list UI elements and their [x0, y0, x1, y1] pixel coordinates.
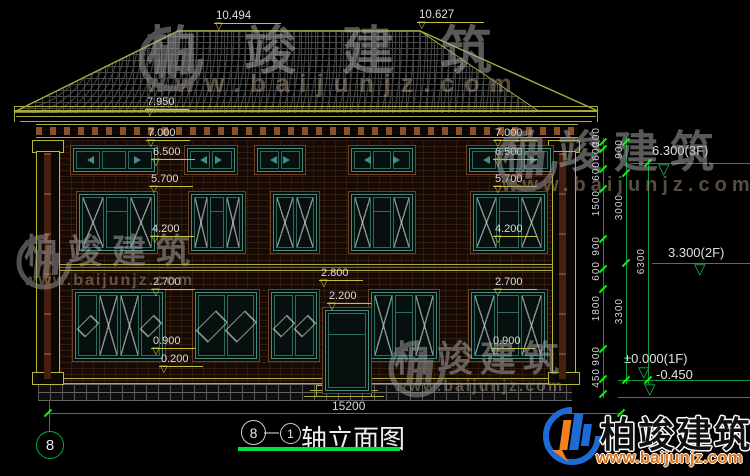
window-pane	[260, 151, 279, 169]
dim-level: 6.500	[151, 147, 195, 160]
title-bubble-left: 8	[241, 420, 266, 445]
dim-level: 4.200	[150, 224, 194, 237]
dim-level: 4.200	[493, 224, 537, 237]
dim-eave: 7.950	[145, 97, 189, 110]
chain-label: 3000	[615, 194, 625, 220]
window	[348, 191, 416, 254]
window-pane	[78, 295, 97, 356]
dim-ridge-right: 10.627	[417, 10, 484, 23]
window	[270, 191, 320, 254]
window	[76, 191, 158, 254]
level-mark-ground: -0.450	[656, 367, 693, 382]
window-pane	[227, 295, 254, 356]
chain-label: 6300	[637, 248, 647, 274]
axis-bubble: 8	[36, 431, 64, 459]
title-separator: —	[264, 424, 279, 441]
window-pane	[120, 295, 139, 356]
window-pane	[274, 295, 293, 356]
elevation-drawing-canvas: 10.494 10.627 7.950 7.000 6.500 5.700 4.…	[0, 0, 750, 476]
chain-label: 600	[592, 261, 602, 281]
window-pane	[395, 295, 414, 356]
window-pane	[130, 197, 152, 248]
dim-level: 0.200	[159, 354, 203, 367]
window-pane	[296, 197, 314, 248]
chain-label: 1500	[592, 190, 602, 216]
window-pane	[281, 151, 300, 169]
chain-label: 900	[592, 236, 602, 256]
chain-label: 3300	[615, 298, 625, 324]
window-pane	[521, 197, 542, 248]
window	[268, 289, 320, 362]
window	[368, 289, 440, 362]
window-pane	[102, 151, 126, 169]
dim-level: 7.000	[493, 128, 537, 141]
brand-logo-icon	[542, 402, 602, 468]
window-pane	[226, 197, 240, 248]
window-pane	[194, 197, 208, 248]
dim-level: 2.700	[151, 277, 195, 290]
dim-level: 0.900	[491, 336, 535, 349]
chain-label: 600	[592, 161, 602, 181]
chain-label: 900	[592, 346, 602, 366]
window	[192, 289, 260, 362]
window-pane	[393, 197, 410, 248]
window-pane	[106, 197, 128, 248]
dim-level: 0.900	[151, 336, 195, 349]
chain-label: 600	[592, 141, 602, 161]
dim-total-width: 15200	[332, 399, 365, 413]
downspout-left	[44, 153, 51, 379]
level-mark-3f: 6.300(3F)	[652, 143, 708, 158]
dim-level: 2.700	[493, 277, 537, 290]
window-pane	[373, 151, 390, 169]
downspout-right	[559, 153, 566, 379]
window-pane	[354, 151, 371, 169]
window-pane	[276, 197, 294, 248]
window-pane	[354, 197, 371, 248]
window-pane	[82, 197, 104, 248]
dim-level: 5.700	[149, 174, 193, 187]
window-pane	[212, 151, 232, 169]
level-mark-2f: 3.300(2F)	[668, 245, 724, 260]
window-pane	[415, 295, 434, 356]
title-bubble-right: 1	[280, 423, 301, 444]
roof-outline	[14, 31, 598, 112]
chain-label: 1800	[592, 295, 602, 321]
dim-ridge-left: 10.494	[214, 11, 281, 24]
dim-door-height: 2.200	[327, 291, 371, 304]
window-pane	[373, 197, 390, 248]
window-pane	[76, 151, 100, 169]
window-pane	[328, 313, 366, 388]
level-arrow-icon: ▽	[638, 366, 650, 379]
transom-window	[348, 145, 416, 175]
title-underline	[238, 447, 400, 451]
chain-label: 450	[592, 368, 602, 388]
window-pane	[99, 295, 118, 356]
window-pane	[210, 197, 224, 248]
level-arrow-icon: ▽	[658, 163, 670, 176]
brand-url: www.baijunjz.com	[596, 448, 743, 468]
chain-label: 900	[615, 139, 625, 159]
window-pane	[198, 295, 225, 356]
dim-door-head: 2.800	[319, 268, 363, 281]
dim-level: 6.500	[493, 147, 537, 160]
window-pane	[393, 151, 410, 169]
window-pane	[295, 295, 314, 356]
dim-level: 7.000	[146, 128, 190, 141]
level-arrow-icon: ▽	[644, 383, 656, 396]
window	[468, 289, 548, 362]
level-mark-1f: ±0.000(1F)	[624, 351, 688, 366]
door	[322, 307, 372, 394]
dim-level: 5.700	[493, 174, 537, 187]
level-arrow-icon: ▽	[694, 263, 706, 276]
window	[188, 191, 246, 254]
transom-window	[254, 145, 306, 175]
window-pane	[374, 295, 393, 356]
window-pane	[128, 151, 152, 169]
roof-hip-line	[420, 31, 540, 112]
transom-window	[70, 145, 158, 175]
